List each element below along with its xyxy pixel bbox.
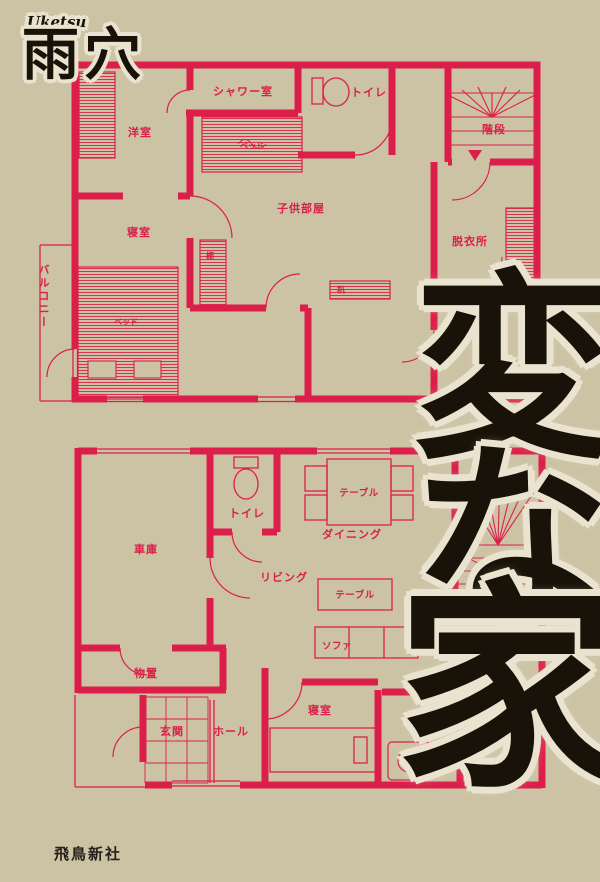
label-dining-table: テーブル <box>339 485 378 499</box>
label-upper-western-room: 洋室 <box>128 124 152 140</box>
publisher-name: 飛鳥新社 <box>54 843 122 864</box>
lower-toilet-icon <box>234 457 258 499</box>
label-balcony: バルコニー <box>35 264 51 329</box>
label-living-table: テーブル <box>335 587 374 601</box>
entrance-tiles <box>145 697 208 783</box>
label-upper-shower-room: シャワー室 <box>213 83 273 99</box>
label-kids-bed: ベッド <box>240 141 264 152</box>
label-dressing-room: 脱衣所 <box>452 233 488 249</box>
lower-bed <box>270 728 376 772</box>
title-char-ie: 家 <box>396 578 600 800</box>
label-dining: ダイニング <box>322 526 382 542</box>
label-upper-bedroom: 寝室 <box>127 224 151 240</box>
stairs-arrow <box>468 150 482 161</box>
label-hall: ホール <box>213 723 249 739</box>
label-lower-bedroom: 寝室 <box>308 702 332 718</box>
label-shelf: 棚 <box>206 251 214 262</box>
label-sofa: ソファ <box>322 638 352 652</box>
book-cover: 洋室 シャワー室 トイレ 階段 子供部屋 寝室 脱衣所 バルコニー ベッド ベッ… <box>0 0 600 882</box>
label-kids-room: 子供部屋 <box>277 200 325 216</box>
label-entrance: 玄関 <box>160 723 184 739</box>
master-bed <box>78 267 178 399</box>
label-storage: 物置 <box>134 665 158 681</box>
label-lower-toilet: トイレ <box>229 505 265 521</box>
label-upper-toilet: トイレ <box>351 84 387 100</box>
label-master-bed: ベッド <box>114 317 138 328</box>
upper-toilet-icon <box>312 78 349 106</box>
author-name: 雨穴 <box>22 26 146 83</box>
label-upper-stairs: 階段 <box>482 121 506 137</box>
label-living: リビング <box>260 569 308 585</box>
label-garage: 車庫 <box>134 541 158 557</box>
label-desk: 机 <box>337 285 345 296</box>
